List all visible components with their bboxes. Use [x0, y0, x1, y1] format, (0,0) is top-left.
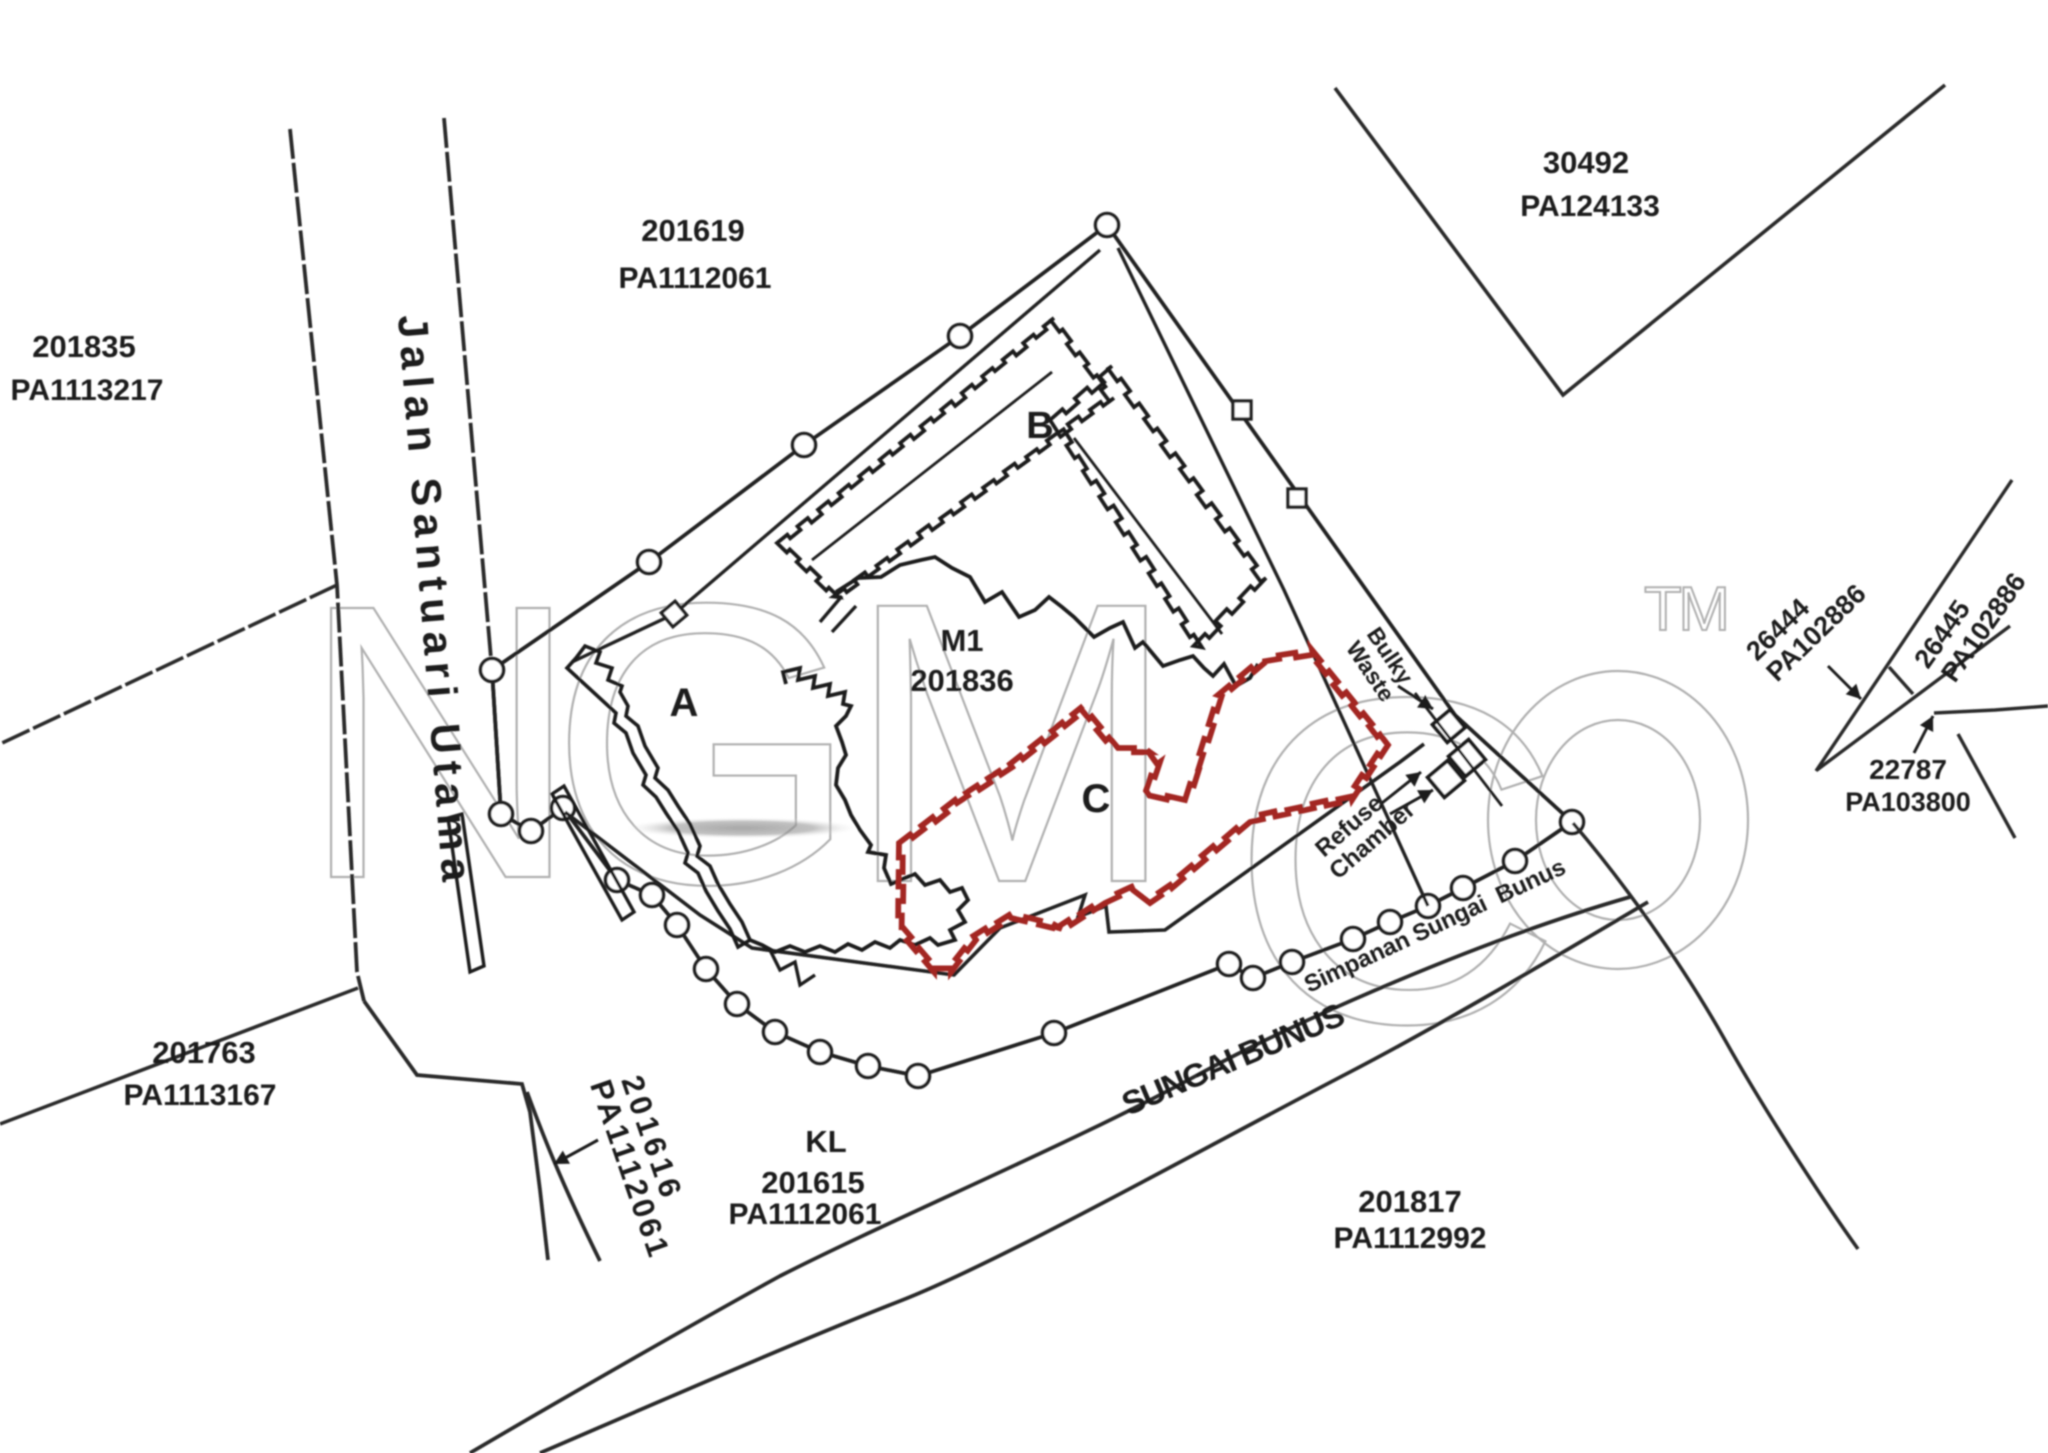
svg-text:B: B — [1026, 405, 1053, 447]
svg-text:PA1112992: PA1112992 — [1334, 1222, 1487, 1255]
svg-text:PA1113167: PA1113167 — [124, 1079, 277, 1112]
svg-text:201763: 201763 — [152, 1035, 255, 1070]
svg-text:TM: TM — [1644, 575, 1736, 644]
svg-text:201615: 201615 — [761, 1165, 864, 1200]
svg-text:201817: 201817 — [1358, 1184, 1461, 1219]
svg-text:M1: M1 — [940, 623, 983, 658]
svg-text:201619: 201619 — [641, 213, 744, 248]
svg-text:C: C — [1082, 777, 1111, 821]
svg-text:201835: 201835 — [32, 329, 135, 364]
svg-text:PA1113217: PA1113217 — [11, 374, 164, 407]
svg-text:22787: 22787 — [1869, 754, 1947, 785]
svg-text:A: A — [670, 681, 699, 725]
svg-text:PA1112061: PA1112061 — [729, 1198, 882, 1231]
svg-text:PA124133: PA124133 — [1520, 190, 1660, 223]
svg-text:M: M — [845, 519, 1178, 966]
svg-text:30492: 30492 — [1543, 145, 1629, 180]
svg-text:PA103800: PA103800 — [1845, 787, 1971, 817]
svg-text:PA1112061: PA1112061 — [619, 262, 772, 295]
svg-text:KL: KL — [805, 1124, 846, 1159]
svg-text:201836: 201836 — [910, 663, 1013, 698]
